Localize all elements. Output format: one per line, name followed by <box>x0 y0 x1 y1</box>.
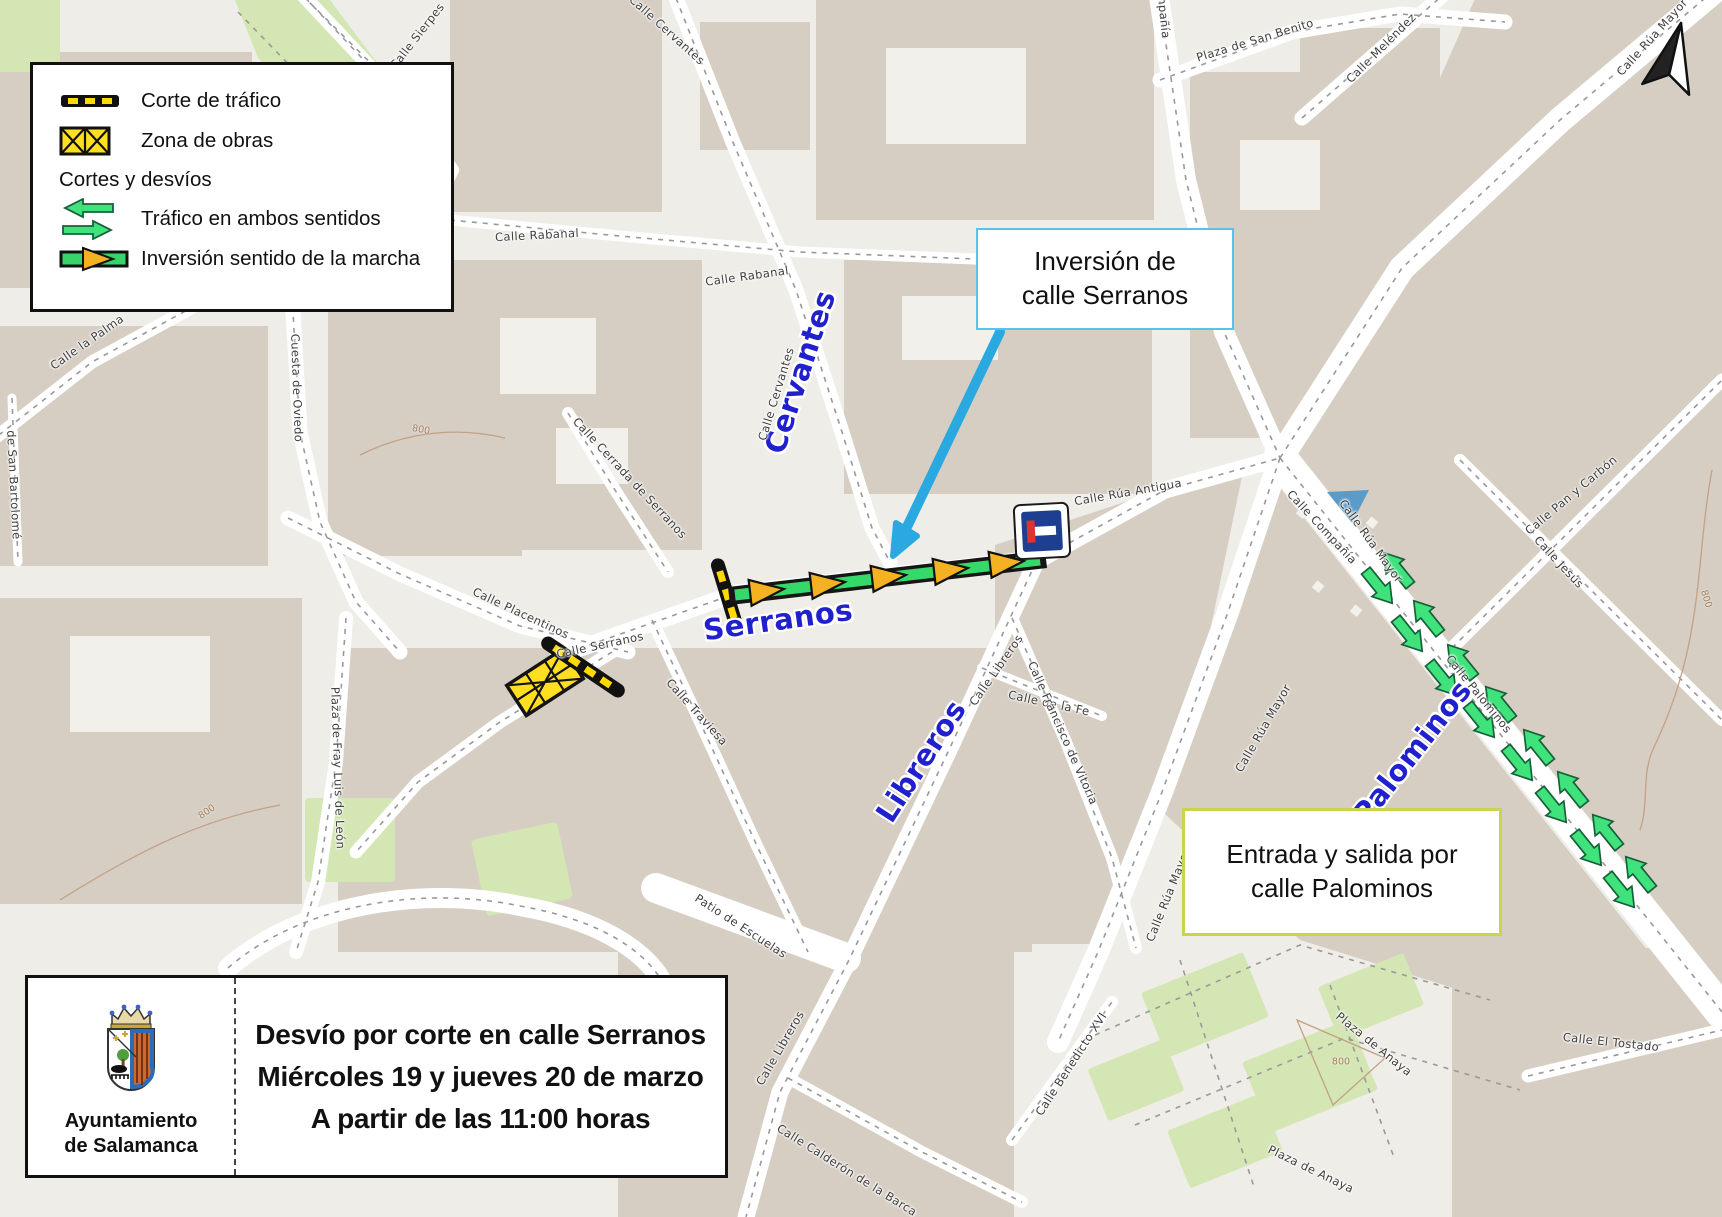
direction-reversal-icon <box>59 246 141 272</box>
info-title-line1: Desvío por corte en calle Serranos <box>255 1014 705 1056</box>
work-zone-icon <box>59 125 141 157</box>
org-name-line1: Ayuntamiento <box>64 1109 197 1134</box>
inversion-callout: Inversión de calle Serranos <box>976 228 1234 330</box>
legend-label: Tráfico en ambos sentidos <box>141 207 381 231</box>
legend-panel: Corte de tráfico Zona de obras Cortes y … <box>30 62 454 312</box>
entrada-callout-line2: calle Palominos <box>1226 872 1457 906</box>
dead-end-sign-icon <box>1014 503 1071 560</box>
info-left-panel: Ayuntamiento de Salamanca <box>28 978 236 1175</box>
legend-label: Zona de obras <box>141 129 273 153</box>
legend-section-header: Cortes y desvíos <box>59 161 451 199</box>
info-panel: Ayuntamiento de Salamanca Desvío por cor… <box>25 975 728 1178</box>
legend-row-two-way: Tráfico en ambos sentidos <box>59 199 451 239</box>
legend-row-traffic-cut: Corte de tráfico <box>59 81 451 121</box>
org-name-line2: de Salamanca <box>64 1134 197 1159</box>
map-screenshot: CervantesSerranosLibrerosPalominosCalle … <box>0 0 1722 1217</box>
legend-row-reversal: Inversión sentido de la marcha <box>59 239 451 279</box>
legend-label: Inversión sentido de la marcha <box>141 247 420 271</box>
legend-label: Corte de tráfico <box>141 89 281 113</box>
legend-row-work-zone: Zona de obras <box>59 121 451 161</box>
info-right-panel: Desvío por corte en calle Serranos Miérc… <box>236 978 725 1175</box>
info-title-line2: Miércoles 19 y jueves 20 de marzo <box>257 1056 703 1098</box>
two-way-arrows-icon <box>59 198 141 240</box>
entrada-callout-line1: Entrada y salida por <box>1226 838 1457 872</box>
traffic-cut-icon <box>59 91 141 111</box>
inversion-callout-line1: Inversión de <box>1022 245 1188 279</box>
info-title-line3: A partir de las 11:00 horas <box>311 1098 650 1140</box>
salamanca-coat-of-arms <box>92 995 170 1103</box>
entrada-callout: Entrada y salida por calle Palominos <box>1182 808 1502 936</box>
inversion-callout-line2: calle Serranos <box>1022 279 1188 313</box>
